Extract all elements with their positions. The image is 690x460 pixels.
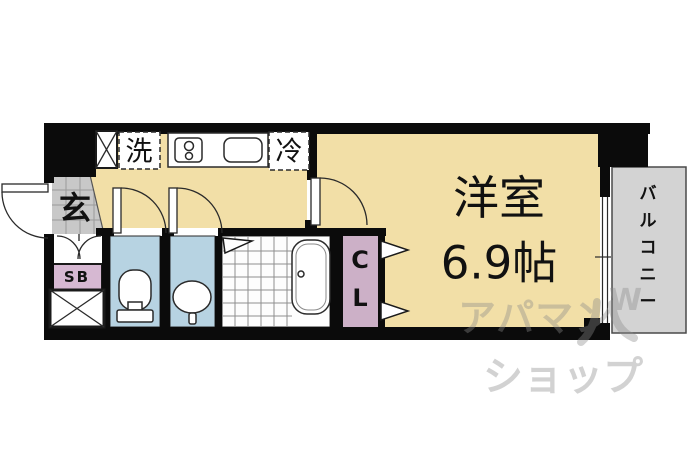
svg-text:ニ: ニ bbox=[640, 265, 657, 285]
entrance-label: 玄 bbox=[59, 189, 91, 227]
svg-text:バ: バ bbox=[640, 184, 657, 204]
shoe-box-label: SB bbox=[64, 268, 90, 286]
bathtub-icon bbox=[292, 240, 330, 314]
entrance-closet-area bbox=[52, 234, 102, 264]
closet-label-c: C bbox=[351, 246, 369, 274]
svg-text:コ: コ bbox=[640, 238, 657, 258]
fridge-label: 冷 bbox=[276, 137, 303, 168]
shaft-x-icon bbox=[50, 290, 104, 327]
watermark-line2: ショップ bbox=[483, 354, 643, 400]
main-room-name: 洋室 bbox=[453, 171, 545, 225]
entrance-door-swing-icon bbox=[2, 184, 48, 238]
outer-wall-left-upper bbox=[44, 123, 54, 183]
kitchen-sink-icon bbox=[224, 138, 262, 162]
floor-plan: 玄 洗 冷 SB C L 洋室 6.9帖 バ ル コ ニ ー アパマン W ショ… bbox=[0, 0, 690, 460]
stove-icon bbox=[175, 138, 202, 162]
washer-label: 洗 bbox=[126, 137, 153, 168]
main-room-size: 6.9帖 bbox=[441, 237, 558, 290]
toilet-icon bbox=[117, 270, 153, 322]
floor-plan-canvas: 玄 洗 冷 SB C L 洋室 6.9帖 バ ル コ ニ ー アパマン W ショ… bbox=[0, 0, 690, 460]
watermark: アパマン W ショップ bbox=[458, 283, 643, 400]
svg-text:ル: ル bbox=[640, 211, 657, 231]
wall-right-above-window bbox=[600, 133, 610, 197]
closet-label-l: L bbox=[352, 284, 367, 312]
